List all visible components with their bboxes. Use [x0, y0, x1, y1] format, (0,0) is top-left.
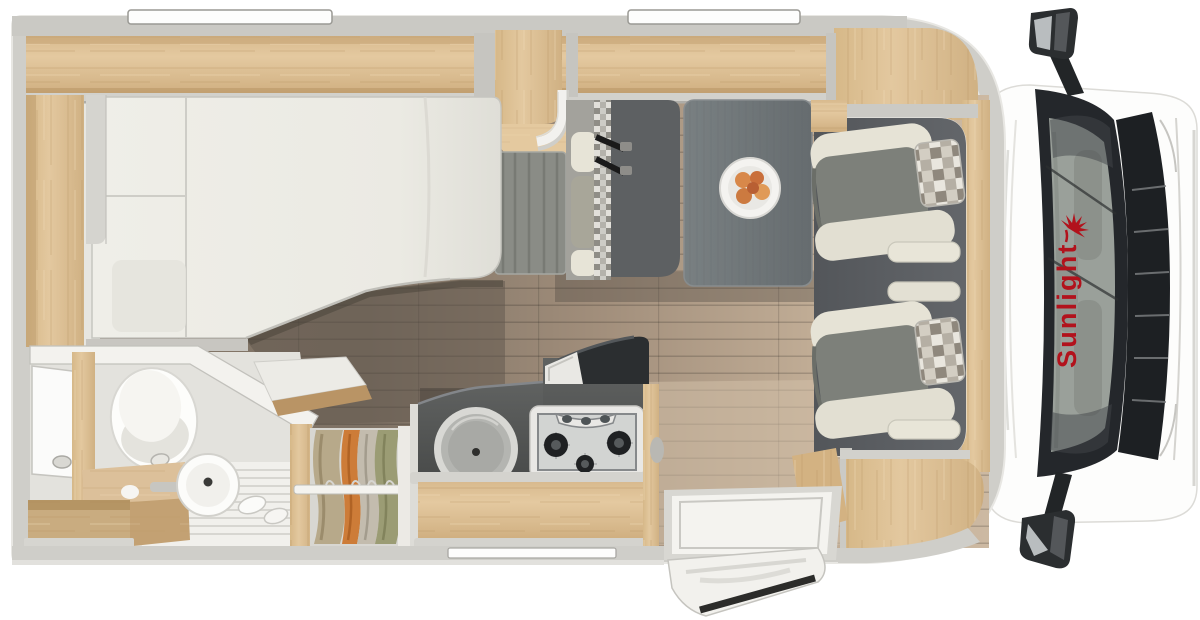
svg-text:Sunlight: Sunlight: [1052, 242, 1082, 368]
